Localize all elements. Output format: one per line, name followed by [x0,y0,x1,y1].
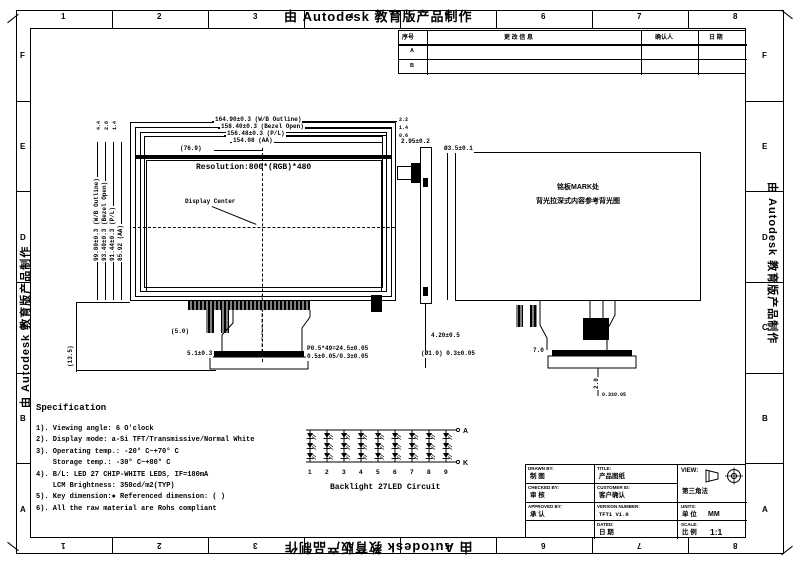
scale-label: SCALE: [681,523,698,528]
active-area-rect [146,160,382,292]
led-column-number: 5 [376,469,380,476]
revision-col-date: 日 期 [709,35,723,41]
zone-number-bottom: 2 [157,541,161,550]
dim-label: (13.5) [68,344,75,368]
zone-number-top: 4 [349,12,353,21]
zone-tick [496,538,497,554]
led-circuit-diagram: AK123456789 [300,424,475,478]
horizontal-centerline [133,227,395,228]
scale-cn: 比 例 [682,530,697,537]
dim-label: 154.08 (AA) [232,138,274,145]
version-number-value: TFT1 V1.0 [599,512,629,518]
dim-label: 2.95±0.2 [400,139,431,146]
units-value: MM [708,511,720,518]
drawn-by-label: DRAWN BY: [528,467,554,472]
spec-items: 1). Viewing angle: 6 O'clock 2). Display… [36,424,254,515]
revision-row-b: B [410,64,414,70]
led-column-number: 9 [444,469,448,476]
zone-number-top: 3 [253,12,257,21]
led-column-number: 3 [342,469,346,476]
zone-letter-left: A [20,505,26,514]
dim-label: 99.80±0.3 (W/B Outline) [94,177,101,262]
revision-table: 序号 更 改 信 息 确认人 日 期 A B [398,30,746,74]
led-column-number: 4 [359,469,363,476]
dim-label: 93.40±0.3 (Bezel Open) [102,181,109,262]
zone-tick [746,463,784,464]
zone-letter-left: B [20,414,26,423]
cathode-label: K [463,460,468,467]
bezel-top-band [135,155,392,159]
zone-number-top: 5 [445,12,449,21]
dim-label: 1.4 [399,126,408,132]
zone-number-bottom: 7 [637,541,641,550]
zone-tick [208,10,209,28]
zone-tick [16,191,30,192]
rear-view-rect [455,152,701,301]
dim-label: P0.5*49=24.5±0.05 [306,346,369,353]
zone-tick [496,10,497,28]
third-angle-projection-icon [704,467,746,485]
drawing-sheet: 由 Autodesk 教育版产品制作 由 Autodesk 教育版产品制作 由 … [0,0,800,563]
display-center-label: Display Center [184,199,236,206]
watermark-right: 由 Autodesk 教育版产品制作 [765,182,781,344]
dim-label: 7.0 [532,348,545,355]
dim-label: 4.20±0.5 [430,333,461,340]
dim-label: 85.92 (AA) [118,224,125,262]
zone-tick [746,282,784,283]
units-label: UNITS: [681,505,696,510]
rear-note-1: 铭板MARK处 [455,184,701,192]
approved-by-value: 承 认 [530,512,545,519]
zone-number-bottom: 5 [445,541,449,550]
dim-label: (Ø1.0) 0.3±0.05 [420,351,476,358]
dim-label: (76.9) [179,146,203,153]
led-column-number: 2 [325,469,329,476]
zone-number-top: 2 [157,12,161,21]
dated-label: DATED: [597,523,614,528]
rear-note-2: 背光拉深式内容参考背光图 [455,198,701,206]
dim-label: (5.0) [170,329,190,336]
zone-tick [16,101,30,102]
title-value: 产品图纸 [599,474,625,481]
resolution-label: Resolution:800*(RGB)*480 [196,164,311,172]
zone-number-top: 7 [637,12,641,21]
zone-number-top: 8 [733,12,737,21]
zone-tick [592,10,593,28]
zone-number-top: 1 [61,12,65,21]
led-column-number: 1 [308,469,312,476]
revision-row-a: A [410,49,414,55]
zone-tick [112,538,113,554]
dim-label: 0.3±0.05 [602,393,626,399]
revision-col-person: 确认人 [655,35,673,41]
zone-letter-right: E [762,142,767,151]
zone-tick [746,191,784,192]
customer-id-value: 客户确认 [599,493,625,500]
zone-letter-left: C [20,323,26,332]
title-label: TITLE: [597,467,611,472]
anode-label: A [463,428,468,435]
zone-number-bottom: 4 [349,541,353,550]
view-label: VIEW: [681,468,698,474]
zone-tick [746,101,784,102]
units-cn: 单 位 [682,512,697,519]
zone-tick [688,10,689,28]
approved-by-label: APPROVED BY: [528,505,562,510]
dim-label: 5.1±0.3 [186,351,213,358]
view-value: 第三角法 [682,489,708,496]
zone-letter-right: D [762,233,768,242]
dim-label: 0.5±0.05/0.3±0.05 [306,354,369,361]
zone-number-bottom: 6 [541,541,545,550]
zone-tick [16,282,30,283]
led-circuit-caption: Backlight 27LED Circuit [330,484,440,492]
zone-letter-right: B [762,414,768,423]
zone-tick [208,538,209,554]
customer-id-label: CUSTOMER ID: [597,486,630,491]
zone-tick [304,538,305,554]
led-column-number: 6 [393,469,397,476]
led-column-number: 8 [427,469,431,476]
zone-number-bottom: 3 [253,541,257,550]
dim-label: 1.4 [113,121,119,130]
zone-letter-left: F [20,51,25,60]
zone-tick [688,538,689,554]
zone-letter-right: F [762,51,767,60]
zone-letter-left: D [20,233,26,242]
version-number-label: VERSION NUMBER: [597,505,640,510]
revision-col-desc: 更 改 信 息 [504,35,533,41]
zone-tick [304,10,305,28]
dim-label: Ø3.5±0.1 [443,146,474,153]
drawn-by-value: 制 图 [530,474,545,481]
zone-number-bottom: 1 [61,541,65,550]
dim-label: 2.8 [105,121,111,130]
zone-tick [16,463,30,464]
zone-tick [746,373,784,374]
dated-value: 日 期 [599,530,614,537]
dim-label: 2.2 [399,118,408,124]
zone-letter-left: E [20,142,25,151]
zone-tick [592,538,593,554]
dim-label: 91.44±0.3 (P/L) [110,206,117,262]
scale-value: 1:1 [710,528,722,537]
led-column-number: 7 [410,469,414,476]
dim-label: 2.0 [594,377,601,390]
zone-tick [400,538,401,554]
revision-col-no: 序号 [402,35,414,41]
rear-fpc-drawing [495,300,655,400]
zone-tick [112,10,113,28]
zone-tick [400,10,401,28]
title-block: DRAWN BY: 制 图 TITLE: 产品图纸 CHECKED BY: 审 … [525,464,746,538]
specification-title: Specification [36,403,106,413]
checked-by-value: 审 核 [530,493,545,500]
checked-by-label: CHECKED BY: [528,486,559,491]
dim-label: 4.4 [97,121,103,130]
zone-letter-right: A [762,505,768,514]
side-view-rect [420,147,432,304]
zone-number-top: 6 [541,12,545,21]
zone-letter-right: C [762,323,768,332]
zone-number-bottom: 8 [733,541,737,550]
zone-tick [16,373,30,374]
front-fpc-drawing [165,295,395,380]
